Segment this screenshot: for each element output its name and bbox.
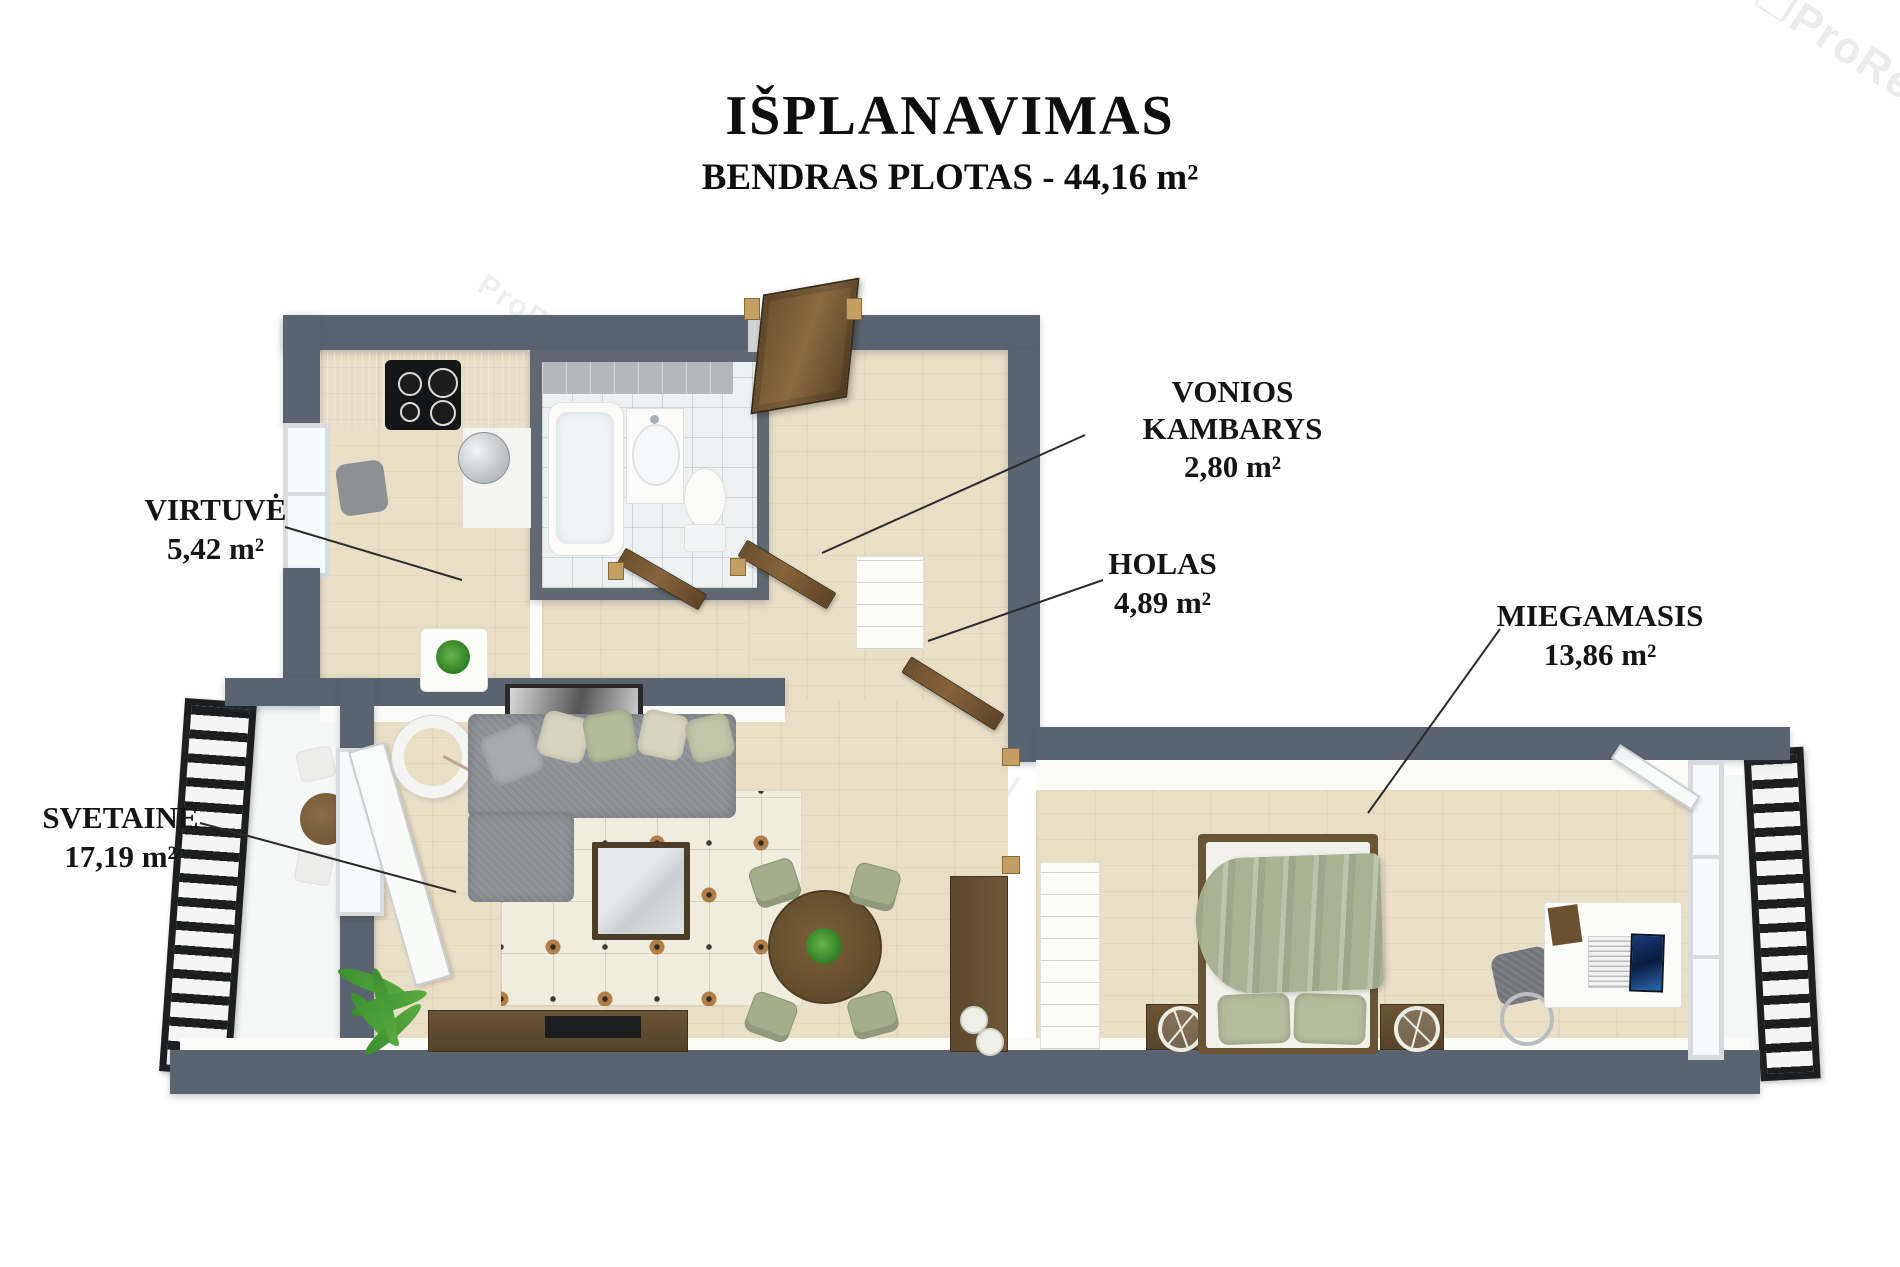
room-area: 17,19 m² (18, 839, 223, 876)
potted-plant (436, 640, 470, 674)
tv (545, 1016, 641, 1038)
kitchen-chair (335, 459, 390, 517)
sink (632, 424, 680, 486)
door-frame-post (608, 562, 624, 580)
range-hood (458, 432, 510, 484)
wall-kitchen-left-upper (283, 315, 320, 423)
room-area: 13,86 m² (1450, 637, 1750, 674)
wall-bedroom-top-face (1036, 760, 1688, 790)
burner (430, 400, 456, 426)
door-frame-post (846, 298, 862, 320)
toilet-bowl (684, 468, 726, 528)
bathroom-wall-tiles (542, 362, 733, 394)
floor-plan: VIRTUVĖ 5,42 m² VONIOS KAMBARYS 2,80 m² … (0, 0, 1900, 1267)
laptop-screen (1629, 933, 1665, 992)
sofa-pillow (636, 708, 691, 763)
entrance-door-open-leaf (750, 277, 859, 414)
bed-blanket (1194, 853, 1385, 995)
balcony-chair (293, 849, 334, 887)
wall-bedroom-top (1036, 727, 1790, 760)
wall-top-left (283, 315, 748, 350)
room-name: VIRTUVĖ (145, 492, 287, 527)
coffee-table (592, 842, 690, 940)
bathroom-vanity (626, 408, 684, 504)
room-label-holas: HOLAS 4,89 m² (1060, 546, 1265, 621)
burner (428, 368, 458, 398)
room-name: MIEGAMASIS (1497, 598, 1704, 633)
room-name: VONIOS KAMBARYS (1143, 374, 1323, 446)
laptop-keyboard (1588, 936, 1632, 988)
room-label-miegamasis: MIEGAMASIS 13,86 m² (1450, 598, 1750, 673)
door-frame-post (730, 558, 746, 576)
wall-top-right (852, 315, 1040, 350)
dining-table-plant (806, 928, 842, 964)
bathtub-basin (556, 412, 614, 544)
room-area: 2,80 m² (1095, 449, 1370, 486)
door-frame-post (744, 298, 760, 320)
bathtub (548, 402, 624, 556)
bed-pillow (1217, 993, 1291, 1045)
room-name: HOLAS (1108, 546, 1217, 581)
faucet (650, 415, 659, 424)
hall-shoe-shelf (856, 556, 924, 650)
room-name: SVETAINĖ (42, 800, 198, 835)
room-area: 4,89 m² (1060, 585, 1265, 622)
room-label-svetaine: SVETAINĖ 17,19 m² (18, 800, 223, 875)
wall-bottom (170, 1050, 1760, 1094)
desk-accessory (1548, 904, 1583, 946)
room-label-vonios-kambarys: VONIOS KAMBARYS 2,80 m² (1095, 374, 1370, 486)
floor-lamp (392, 716, 474, 798)
room-label-virtuve: VIRTUVĖ 5,42 m² (118, 492, 313, 567)
burner (400, 402, 420, 422)
bed-pillow (1293, 993, 1367, 1045)
toilet-tank (684, 524, 726, 552)
wall-living-left-upper (340, 678, 374, 748)
cabinet-lamp (976, 1028, 1004, 1056)
burner (398, 372, 422, 396)
window-mullion (1693, 855, 1719, 859)
sofa-pillow (581, 708, 639, 764)
door-frame-post (1002, 748, 1020, 766)
sofa-chaise (468, 812, 574, 902)
door-frame-post (1002, 856, 1020, 874)
room-area: 5,42 m² (118, 531, 313, 568)
bedroom-wardrobe (1040, 862, 1100, 1050)
wall-hall-right (1008, 350, 1040, 762)
window-mullion (1693, 955, 1719, 959)
